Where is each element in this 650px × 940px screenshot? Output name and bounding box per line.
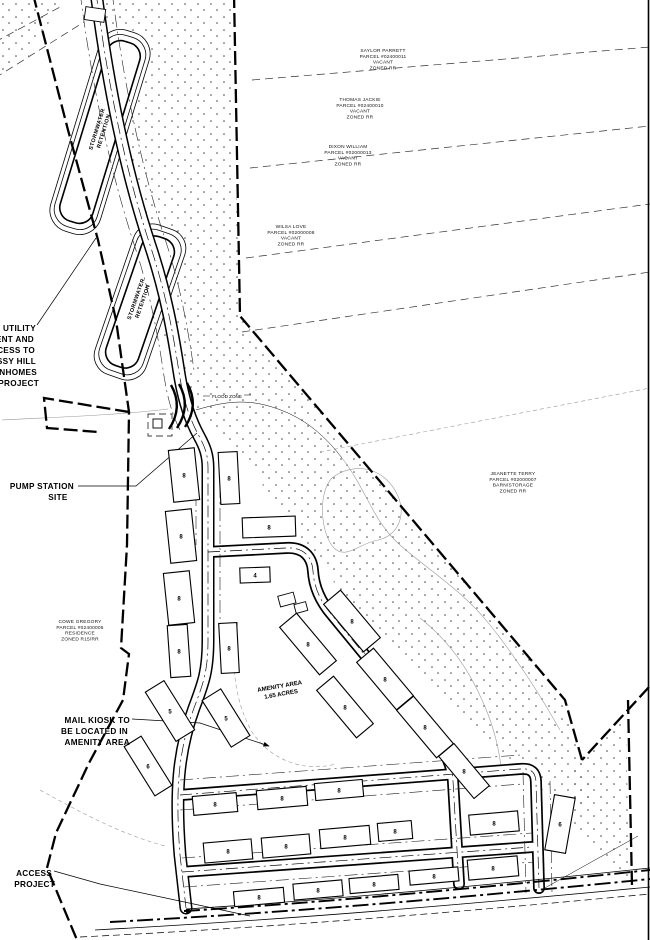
building: 8 — [319, 825, 370, 848]
parcel-label-line: COWE GREGORY — [58, 619, 102, 625]
parcel-label-line: ZONED R15/RR — [61, 636, 99, 642]
annotation-line: FLOOD ZONE — [212, 394, 242, 399]
site-plan-page: 8888888488888855668888888888888 SAYLOR P… — [0, 0, 650, 940]
flood-zone-label: FLOOD ZONE — [212, 394, 242, 399]
building: 8 — [242, 516, 296, 538]
mail-kiosk-note: MAIL KIOSK TOBE LOCATED INAMENITY AREA — [61, 716, 130, 747]
building: 6 — [545, 795, 575, 854]
parcel-wilsa: WILSA LOVEPARCEL #02000008VACANTZONED RR — [267, 224, 314, 247]
parcel-label-line: VACANT — [338, 156, 358, 162]
annotation-line: AMENITY AREA — [65, 738, 130, 747]
site-plan-canvas: 8888888488888855668888888888888 SAYLOR P… — [0, 0, 650, 940]
building: 8 — [314, 779, 363, 800]
contour-creek-left — [2, 409, 168, 420]
parcel-label-line: PARCEL #02000007 — [489, 477, 536, 483]
annotation-line: SITE — [48, 493, 68, 502]
parcel-label-line: BARN/STORAGE — [493, 483, 533, 489]
contour-bottomleft — [40, 790, 165, 846]
annotation-line: UTILITY — [3, 324, 36, 333]
annotation-line: MAIL KIOSK TO — [65, 716, 131, 725]
building: 8 — [409, 867, 459, 885]
annotation-line: PUMP STATION — [10, 482, 74, 491]
annotation-line: SSY HILL — [0, 357, 36, 366]
building: 4 — [240, 567, 271, 583]
access-note: ACCESSPROJECT — [14, 869, 55, 889]
building: 8 — [349, 874, 399, 893]
parcel-label-line: ZONED RR — [500, 488, 527, 494]
amenity-area-label: AMENITY AREA1.65 ACRES — [257, 680, 305, 702]
stipple-topleft-patch — [0, 0, 62, 78]
pump-station-structure — [153, 419, 162, 428]
building: 8 — [377, 821, 412, 842]
annotation-line: CESS TO — [0, 346, 35, 355]
boundary-right-side — [628, 700, 632, 886]
building: 8 — [256, 786, 307, 809]
building: 8 — [165, 509, 196, 563]
building: 8 — [293, 880, 343, 900]
parcel-label-line: PARCEL #02400011 — [360, 54, 407, 60]
building: 8 — [469, 811, 520, 835]
building: 8 — [280, 613, 337, 675]
top-structure — [84, 7, 106, 23]
utility-easement-note: UTILITYENT ANDCESS TOSSY HILLWNHOMESPROJ… — [0, 324, 39, 388]
building: 8 — [261, 834, 311, 858]
parcel-line-4 — [242, 272, 650, 332]
building: 8 — [203, 839, 253, 863]
boundary-left-notch — [44, 398, 129, 432]
parcel-label-line: SAYLOR PARRETT — [360, 48, 405, 54]
parcel-label-line: RESIDENCE — [65, 631, 95, 637]
parcel-label-line: ZONED RR — [278, 241, 305, 247]
parcel-line-5 — [320, 388, 650, 452]
annotation-line: PROJECT — [0, 379, 39, 388]
parcel-label-line: PARCEL #02000013 — [324, 150, 371, 156]
building: 8 — [163, 571, 194, 625]
building: 8 — [317, 676, 374, 738]
parcel-label-line: PARCEL #02400010 — [336, 103, 383, 109]
road-junction-marker — [186, 909, 191, 914]
annotation-line: PROJECT — [14, 880, 55, 889]
creek-stroke-1 — [169, 385, 177, 429]
flank-vright-left — [523, 772, 526, 893]
building: 8 — [218, 452, 240, 505]
parcel-label-line: DIXON WILLIAM — [329, 144, 368, 150]
amenity-label-layer: AMENITY AREA1.65 ACRES — [257, 680, 305, 702]
building: 5 — [202, 689, 250, 747]
parcel-label-line: VACANT — [373, 60, 393, 66]
parcel-label-line: ZONED RR — [335, 161, 362, 167]
building: 8 — [192, 793, 237, 816]
building: 8 — [167, 624, 191, 677]
annotation-line: ENT AND — [0, 335, 34, 344]
amenity-structure-1 — [278, 592, 296, 607]
parcel-line-1 — [252, 47, 650, 80]
annotation-line: WNHOMES — [0, 368, 37, 377]
amenity-structure-2 — [294, 602, 308, 614]
pump-station-note: PUMP STATIONSITE — [10, 482, 74, 502]
building: 8 — [467, 856, 519, 880]
bottom-road-edge-3 — [80, 894, 650, 937]
parcel-label-line: ZONED RR — [370, 65, 397, 71]
parcel-cowe: COWE GREGORYPARCEL #02400005RESIDENCEZON… — [56, 619, 103, 642]
parcel-label-line: VACANT — [281, 236, 301, 242]
parcel-label-line: WILSA LOVE — [276, 224, 307, 230]
building: 6 — [124, 736, 172, 796]
annotation-line: BE LOCATED IN — [61, 727, 128, 736]
parcel-thomas: THOMAS JACKIEPARCEL #02400010VACANTZONED… — [336, 97, 383, 120]
building: 8 — [219, 623, 240, 674]
building: 8 — [168, 448, 199, 502]
parcel-label-line: THOMAS JACKIE — [339, 97, 380, 103]
building: 8 — [397, 696, 454, 758]
parcel-label-line: PARCEL #02000008 — [267, 230, 314, 236]
parcel-label-line: ZONED RR — [347, 114, 374, 120]
parcel-label-line: VACANT — [350, 109, 370, 115]
annotation-line: ACCESS — [16, 869, 52, 878]
parcel-label-line: PARCEL #02400005 — [56, 625, 103, 631]
parcel-label-line: JEANETTE TERRY — [491, 471, 536, 477]
parcel-line-2 — [250, 126, 650, 168]
parcel-dixon: DIXON WILLIAMPARCEL #02000013VACANTZONED… — [324, 144, 371, 167]
parcel-jeanette: JEANETTE TERRYPARCEL #02000007BARN/STORA… — [489, 471, 536, 494]
stipple-main-band — [100, 2, 594, 813]
utility-leader — [37, 238, 96, 325]
